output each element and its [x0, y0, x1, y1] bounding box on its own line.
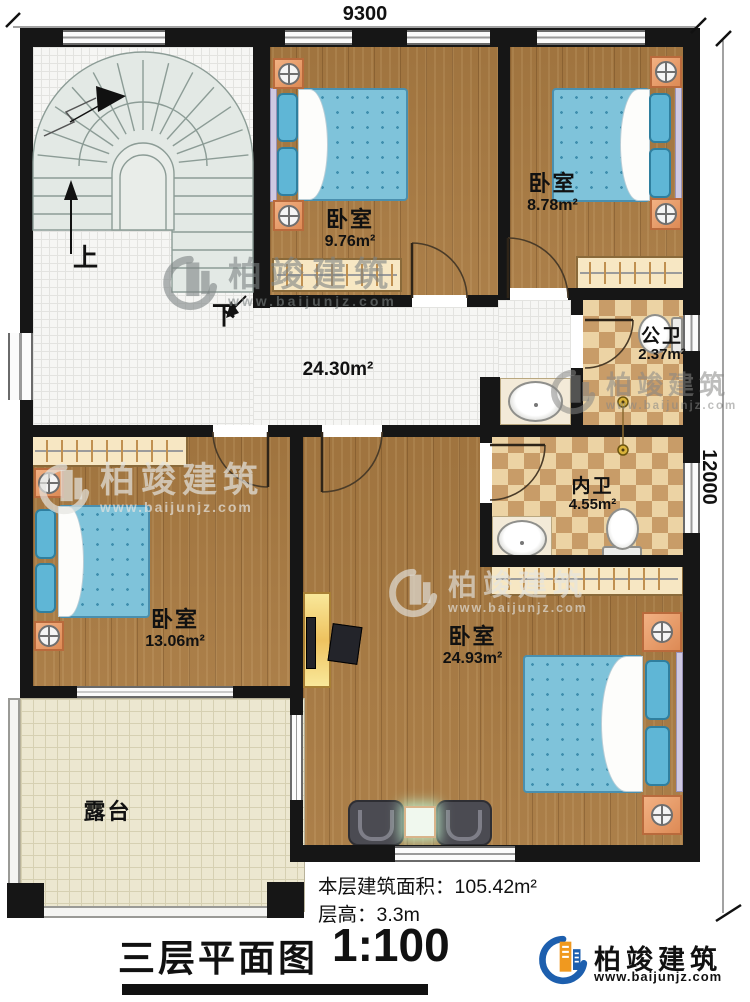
wall — [480, 555, 700, 567]
wall — [253, 28, 270, 308]
wardrobe — [490, 562, 684, 596]
bed-blanket — [601, 656, 643, 792]
brand-website: www.baijunjz.com — [594, 969, 722, 984]
tv-screen — [328, 623, 363, 665]
wall — [500, 425, 700, 437]
sink — [508, 381, 563, 422]
floor-area-value: 105.42m² — [455, 876, 537, 898]
terrace-parapet — [8, 906, 304, 918]
room-label-hallway: 24.30m² — [268, 359, 408, 381]
lamp-icon — [38, 625, 60, 647]
nightstand — [642, 795, 682, 835]
bed-pillow — [35, 563, 56, 613]
dimension-top: 9300 — [315, 3, 415, 26]
room-label-bedroom-top-middle: 卧室 9.76m² — [290, 208, 410, 251]
plan-scale: 1:100 — [332, 918, 450, 972]
wall — [20, 425, 213, 437]
terrace-pier — [267, 882, 304, 918]
lamp-icon — [38, 472, 60, 494]
wall — [498, 28, 510, 300]
lamp-icon — [655, 203, 677, 225]
page-title: 三层平面图 — [118, 928, 318, 982]
window — [407, 30, 490, 45]
window — [285, 30, 352, 45]
wall — [568, 288, 700, 300]
room-label-bedroom-middle-left: 卧室 13.06m² — [110, 608, 240, 651]
sink — [497, 520, 547, 558]
toilet — [606, 508, 639, 550]
dimension-right: 12000 — [700, 432, 720, 522]
wardrobe — [576, 256, 686, 290]
window — [63, 30, 165, 45]
wall — [467, 295, 498, 307]
bed-pillow — [277, 93, 298, 142]
hallway-floor-right — [498, 300, 571, 378]
nightstand — [650, 198, 682, 230]
nightstand — [650, 56, 682, 88]
brand-logo-icon — [538, 932, 588, 988]
title-underline — [122, 984, 428, 995]
terrace-sliding-door — [77, 686, 233, 698]
brand-logo — [538, 932, 588, 993]
floor-area-label: 本层建筑面积： — [318, 876, 455, 898]
wall — [498, 288, 508, 300]
terrace-parapet — [8, 698, 20, 910]
bed-headboard — [270, 88, 277, 202]
bed-pillow — [649, 93, 671, 143]
nightstand — [34, 468, 64, 498]
wall — [480, 503, 492, 557]
bed-pillow — [35, 509, 56, 559]
wall — [480, 430, 492, 443]
bed-pillow — [649, 148, 671, 198]
floor-plan-page: 卧室 9.76m² 卧室 8.78m² 24.30m² 公卫 2.37m² 内卫… — [0, 0, 750, 1002]
wardrobe — [30, 435, 188, 467]
nightstand — [642, 612, 682, 652]
wall — [303, 425, 322, 437]
room-label-master-bedroom: 卧室 24.93m² — [405, 625, 540, 668]
stair-hall-floor — [33, 47, 253, 425]
room-label-terrace: 露台 — [60, 800, 155, 825]
wall — [571, 368, 583, 430]
lamp-icon — [655, 61, 677, 83]
window — [290, 715, 303, 800]
stair-down-label: 下 — [212, 296, 237, 332]
chair — [348, 800, 404, 846]
terrace-pier — [7, 883, 44, 918]
bed-pillow — [645, 660, 670, 720]
floor-area-line: 本层建筑面积：105.42m² — [318, 870, 537, 899]
wall — [683, 28, 700, 862]
wall — [268, 425, 290, 437]
wardrobe — [272, 258, 402, 292]
bed-pillow — [277, 147, 298, 196]
stair-up-label: 上 — [73, 238, 98, 274]
tv-icon — [306, 617, 316, 669]
bed-pillow — [645, 726, 670, 786]
window — [8, 333, 33, 400]
bed-headboard — [675, 86, 682, 202]
window — [537, 30, 645, 45]
window — [395, 846, 515, 862]
nightstand — [273, 58, 304, 89]
wall — [480, 377, 500, 430]
room-label-public-bathroom: 公卫 2.37m² — [612, 326, 712, 364]
side-table — [404, 806, 436, 838]
nightstand — [34, 621, 64, 651]
lamp-icon — [278, 63, 300, 85]
bed-blanket — [620, 89, 650, 201]
lamp-icon — [651, 804, 673, 826]
lamp-icon — [651, 621, 673, 643]
wall — [571, 300, 583, 315]
room-label-private-bathroom: 内卫 4.55m² — [540, 476, 645, 514]
room-label-bedroom-top-right: 卧室 8.78m² — [495, 172, 610, 215]
wall — [270, 295, 412, 307]
chair — [436, 800, 492, 846]
bed-headboard — [676, 652, 683, 792]
